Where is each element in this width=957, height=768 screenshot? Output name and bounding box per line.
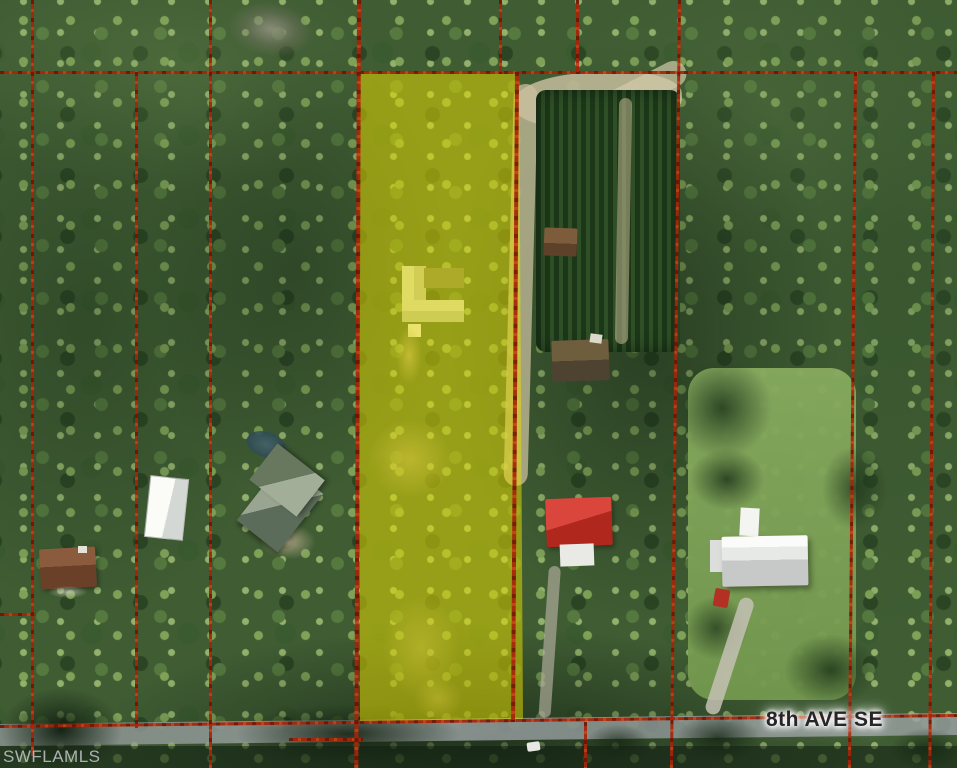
house-gray-gable [246, 450, 326, 562]
lawn-tree-canopy [690, 448, 764, 510]
parcel-line-h-bottom-short [289, 738, 363, 741]
house-brown-roof [39, 547, 97, 590]
farm-crop-rows [536, 90, 680, 352]
parcel-line-v-6 [576, 0, 579, 74]
road-tree-canopy [586, 724, 650, 762]
shed-white-speck [589, 333, 602, 344]
mls-watermark: SWFLAMLS [3, 747, 101, 767]
barn-main-roof [722, 535, 809, 586]
shed-roof-2 [551, 339, 609, 382]
yard-debris-speck [48, 586, 88, 598]
shed-roof-1 [544, 227, 578, 256]
parcel-line-v-9 [584, 722, 587, 768]
truck-red [713, 588, 731, 608]
parcel-line-v-3 [209, 0, 212, 768]
aerial-parcel-map: 8th AVE SE SWFLAMLS [0, 0, 957, 768]
lawn-tree-canopy [784, 634, 878, 706]
road-tree-canopy [890, 728, 957, 768]
white-roof-outbuilding [144, 475, 189, 541]
roof-section [545, 497, 613, 547]
barn-small-building [739, 508, 759, 537]
lawn-tree-canopy [672, 358, 772, 458]
parcel-line-v-1 [31, 0, 34, 756]
road-shoulder-shadow [0, 746, 957, 768]
street-label: 8th AVE SE [766, 708, 883, 732]
road-tree-canopy [676, 714, 760, 762]
white-annex [560, 543, 595, 566]
rooftop-vent-speck [78, 546, 87, 553]
parcel-line-v-5 [499, 0, 502, 74]
parcel-line-h-top [0, 71, 957, 74]
car-white [526, 741, 540, 752]
house-red-roof [546, 496, 616, 570]
barn-white-roof [708, 504, 812, 594]
lawn-tree-canopy [822, 446, 888, 530]
parcel-line-v-2 [135, 72, 138, 728]
